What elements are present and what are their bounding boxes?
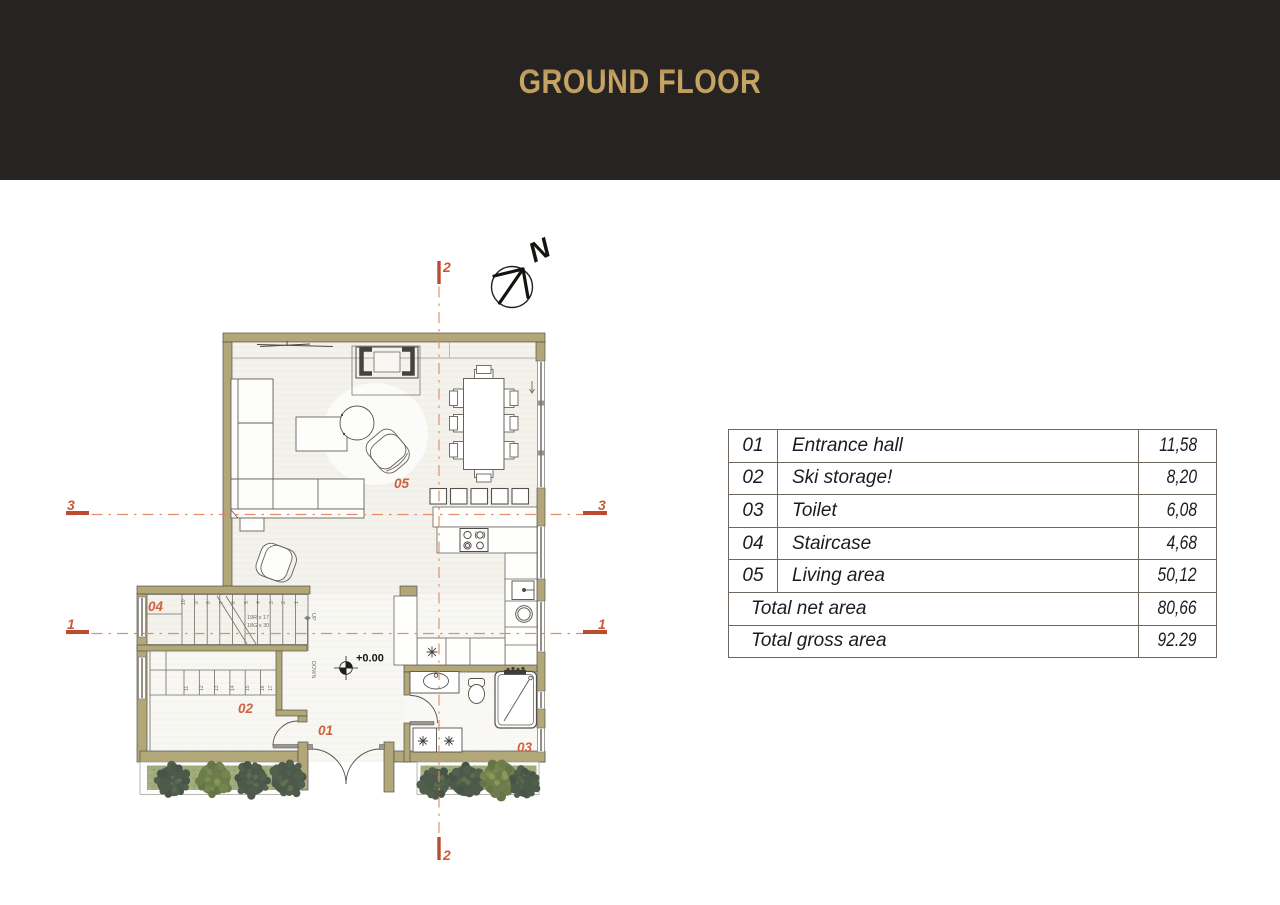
svg-text:4: 4 (256, 601, 262, 604)
svg-text:03: 03 (517, 740, 533, 755)
svg-text:7: 7 (219, 601, 225, 604)
svg-text:9: 9 (194, 601, 200, 604)
svg-text:3: 3 (598, 497, 606, 513)
svg-text:8: 8 (206, 601, 212, 604)
svg-text:15: 15 (245, 685, 251, 691)
svg-text:11: 11 (184, 686, 190, 691)
svg-text:1: 1 (67, 616, 75, 632)
svg-text:1: 1 (294, 601, 300, 604)
svg-text:14: 14 (230, 685, 236, 691)
svg-text:N: N (524, 231, 556, 268)
svg-text:01: 01 (318, 723, 333, 738)
svg-text:16: 16 (260, 685, 266, 691)
svg-text:18G x 30: 18G x 30 (247, 623, 269, 629)
svg-text:02: 02 (238, 701, 254, 716)
svg-text:3: 3 (67, 497, 75, 513)
svg-text:UP: UP (310, 613, 316, 621)
svg-text:3: 3 (269, 601, 275, 604)
svg-text:12: 12 (199, 685, 205, 691)
svg-text:5: 5 (244, 601, 250, 604)
svg-text:17: 17 (268, 685, 274, 691)
svg-text:2: 2 (442, 847, 451, 863)
svg-text:+0.00: +0.00 (356, 653, 384, 665)
svg-text:05: 05 (394, 476, 410, 491)
svg-text:04: 04 (148, 599, 164, 614)
svg-text:10: 10 (181, 599, 187, 605)
svg-text:1: 1 (598, 616, 606, 632)
svg-text:2: 2 (442, 259, 451, 275)
svg-text:6: 6 (231, 601, 237, 604)
svg-text:19R x 17: 19R x 17 (247, 615, 269, 621)
svg-text:13: 13 (214, 685, 220, 691)
svg-text:DOWN: DOWN (310, 661, 316, 678)
svg-text:2: 2 (281, 601, 287, 604)
